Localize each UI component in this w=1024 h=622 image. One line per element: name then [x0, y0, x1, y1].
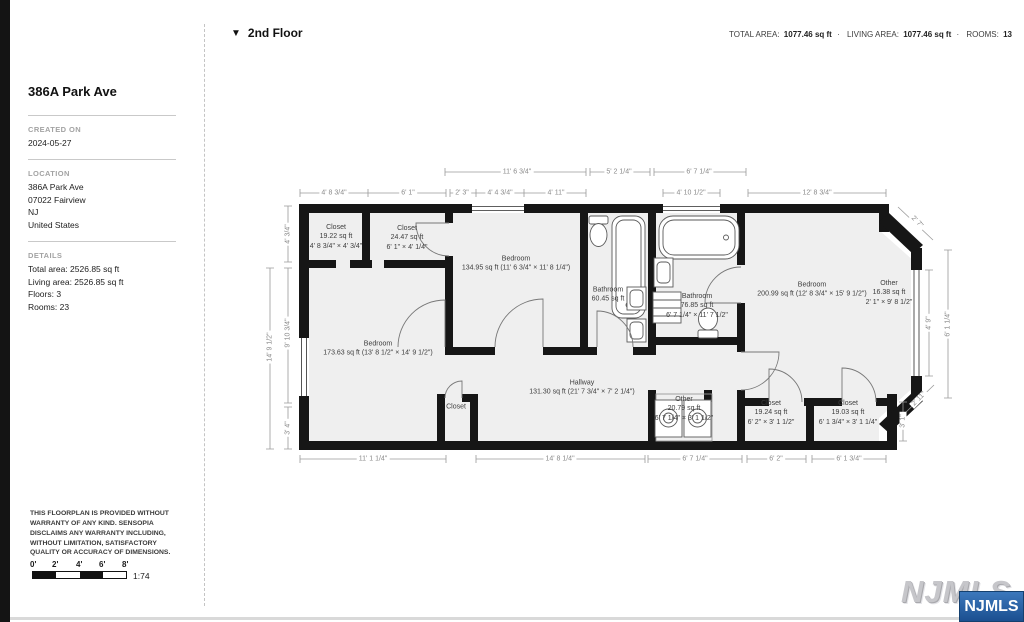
dimension-label: 3' 4" — [285, 419, 292, 437]
room-label: Hallway 131.30 sq ft (21' 7 3/4" × 7' 2 … — [529, 379, 635, 398]
room-area: 20.79 sq ft — [655, 404, 713, 413]
disclaimer-text: THIS FLOORPLAN IS PROVIDED WITHOUT WARRA… — [30, 509, 184, 558]
room-label: Bedroom 173.63 sq ft (13' 8 1/2" × 14' 9… — [323, 340, 432, 359]
room-name: Bedroom — [323, 340, 432, 349]
dimension-label: 14' 8 1/4" — [543, 456, 576, 463]
toilet-icon — [589, 216, 608, 247]
sink-icon — [627, 287, 646, 310]
dimension-label: 6' 7 1/4" — [680, 456, 709, 463]
location-line: United States — [28, 219, 176, 232]
dimension-label: 4' 9" — [926, 314, 933, 332]
room-label: Bathroom 60.45 sq ft — [592, 286, 625, 305]
room-dimensions: 6' 7 1/4" × 3' 1 1/2" — [655, 414, 713, 423]
dimension-label: 11' 1 1/4" — [357, 456, 390, 463]
dimension-label: 12' 8 3/4" — [800, 190, 833, 197]
room-area: 19.03 sq ft — [819, 408, 877, 417]
floor-label: 2nd Floor — [248, 26, 303, 40]
room-dimensions: 6' 7 1/4" × 11' 7 1/2" — [666, 311, 728, 320]
room-name: Bathroom — [666, 292, 728, 301]
room-dimensions: 4' 8 3/4" × 4' 3/4" — [310, 242, 363, 251]
divider — [28, 241, 176, 242]
collapse-triangle-icon[interactable]: ▼ — [231, 28, 241, 39]
room-name: Other — [866, 279, 913, 288]
scale-tick: 0' — [30, 560, 36, 569]
room-area: 76.85 sq ft — [666, 301, 728, 310]
created-section: CREATED ON 2024-05-27 — [28, 125, 176, 150]
room-name: Closet — [748, 399, 795, 408]
floor-stats: TOTAL AREA: 1077.46 sq ft · LIVING AREA:… — [727, 30, 1012, 39]
room-label: Other 16.38 sq ft 2' 1" × 9' 8 1/2" — [866, 279, 913, 307]
dimension-label: 9' 10 3/4" — [285, 316, 292, 349]
dimension-label: 6' 1 1/4" — [945, 309, 952, 338]
dimension-label: 11' 6 3/4" — [501, 169, 534, 176]
total-area-label: TOTAL AREA: — [729, 30, 780, 39]
dimension-label: 4' 4 3/4" — [485, 190, 514, 197]
dimension-label: 6' 7 1/4" — [684, 169, 713, 176]
scale-tick: 6' — [99, 560, 105, 569]
room-name: Closet — [446, 402, 466, 411]
sidebar: 386A Park Ave CREATED ON 2024-05-27 LOCA… — [28, 84, 176, 314]
room-area: 19.24 sq ft — [748, 408, 795, 417]
bottom-edge-line — [0, 617, 1024, 620]
details-section: DETAILS Total area: 2526.85 sq ft Living… — [28, 251, 176, 314]
room-name: Hallway — [529, 379, 635, 388]
divider — [28, 115, 176, 116]
dimension-label: 6' 1 3/4" — [834, 456, 863, 463]
floorplan-page: Closet 19.22 sq ft 4' 8 3/4" × 4' 3/4" C… — [0, 0, 1024, 622]
room-dimensions: 6' 1" × 4' 1/4" — [387, 243, 428, 252]
created-label: CREATED ON — [28, 125, 176, 134]
dimension-label: 4' 8 3/4" — [319, 190, 348, 197]
location-line: 07022 Fairview — [28, 194, 176, 207]
floor-selector[interactable]: ▼ 2nd Floor — [231, 26, 303, 40]
njmls-logo-badge: NJMLS — [959, 591, 1024, 622]
room-label: Bathroom 76.85 sq ft 6' 7 1/4" × 11' 7 1… — [666, 292, 728, 320]
scale-tick: 2' — [52, 560, 58, 569]
dimension-label: 2' 3" — [453, 190, 471, 197]
rooms-value: 13 — [1003, 30, 1012, 39]
divider — [28, 159, 176, 160]
room-area: 131.30 sq ft (21' 7 3/4" × 7' 2 1/4") — [529, 388, 635, 397]
room-label: Closet 19.24 sq ft 6' 2" × 3' 1 1/2" — [748, 399, 795, 427]
scale-bar: 0' 2' 4' 6' 8' 1:74 — [32, 560, 172, 584]
bathtub-icon — [659, 216, 739, 259]
location-line: NJ — [28, 206, 176, 219]
living-area-label: LIVING AREA: — [847, 30, 899, 39]
section-divider — [204, 24, 205, 606]
dimension-label: 4' 11" — [546, 190, 567, 197]
room-area: 60.45 sq ft — [592, 295, 625, 304]
dimension-label: 3' 1" — [900, 412, 907, 430]
living-area-value: 1077.46 sq ft — [903, 30, 951, 39]
dimension-label: 6' 1" — [399, 190, 417, 197]
room-name: Closet — [387, 224, 428, 233]
left-edge-strip — [0, 0, 10, 622]
room-area: 173.63 sq ft (13' 8 1/2" × 14' 9 1/2") — [323, 349, 432, 358]
room-name: Bedroom — [462, 255, 570, 264]
room-dimensions: 6' 2" × 3' 1 1/2" — [748, 418, 795, 427]
room-label: Closet — [446, 402, 466, 411]
room-name: Bedroom — [757, 281, 866, 290]
details-label: DETAILS — [28, 251, 176, 260]
room-label: Closet 19.03 sq ft 6' 1 3/4" × 3' 1 1/4" — [819, 399, 877, 427]
room-label: Bedroom 134.95 sq ft (11' 6 3/4" × 11' 8… — [462, 255, 570, 274]
room-dimensions: 6' 1 3/4" × 3' 1 1/4" — [819, 418, 877, 427]
dimension-label: 5' 2 1/4" — [604, 169, 633, 176]
sink-icon — [654, 258, 673, 287]
room-name: Other — [655, 395, 713, 404]
room-dimensions: 2' 1" × 9' 8 1/2" — [866, 298, 913, 307]
room-name: Closet — [819, 399, 877, 408]
scale-ratio: 1:74 — [133, 571, 150, 581]
rooms-label: ROOMS: — [966, 30, 998, 39]
room-area: 24.47 sq ft — [387, 233, 428, 242]
scale-tick: 4' — [76, 560, 82, 569]
sink-icon — [627, 319, 646, 342]
details-line: Living area: 2526.85 sq ft — [28, 276, 176, 289]
details-line: Floors: 3 — [28, 288, 176, 301]
room-name: Bathroom — [592, 286, 625, 295]
room-area: 19.22 sq ft — [310, 232, 363, 241]
room-label: Closet 24.47 sq ft 6' 1" × 4' 1/4" — [387, 224, 428, 252]
room-area: 134.95 sq ft (11' 6 3/4" × 11' 8 1/4") — [462, 264, 570, 273]
scale-bar-graphic — [32, 571, 127, 579]
room-label: Bedroom 200.99 sq ft (12' 8 3/4" × 15' 9… — [757, 281, 866, 300]
details-line: Total area: 2526.85 sq ft — [28, 263, 176, 276]
room-name: Closet — [310, 223, 363, 232]
room-area: 200.99 sq ft (12' 8 3/4" × 15' 9 1/2") — [757, 290, 866, 299]
dimension-label: 6' 2" — [767, 456, 785, 463]
dimension-label: 14' 9 1/2" — [267, 330, 274, 363]
scale-tick: 8' — [122, 560, 128, 569]
room-area: 16.38 sq ft — [866, 288, 913, 297]
details-line: Rooms: 23 — [28, 301, 176, 314]
room-label: Closet 19.22 sq ft 4' 8 3/4" × 4' 3/4" — [310, 223, 363, 251]
separator: · — [837, 30, 840, 39]
page-title: 386A Park Ave — [28, 84, 176, 99]
location-section: LOCATION 386A Park Ave 07022 Fairview NJ… — [28, 169, 176, 232]
room-label: Other 20.79 sq ft 6' 7 1/4" × 3' 1 1/2" — [655, 395, 713, 423]
total-area-value: 1077.46 sq ft — [784, 30, 832, 39]
separator: · — [957, 30, 960, 39]
location-line: 386A Park Ave — [28, 181, 176, 194]
dimension-label: 4' 3/4" — [285, 222, 292, 245]
created-value: 2024-05-27 — [28, 137, 176, 150]
location-label: LOCATION — [28, 169, 176, 178]
dimension-label: 4' 10 1/2" — [674, 190, 707, 197]
